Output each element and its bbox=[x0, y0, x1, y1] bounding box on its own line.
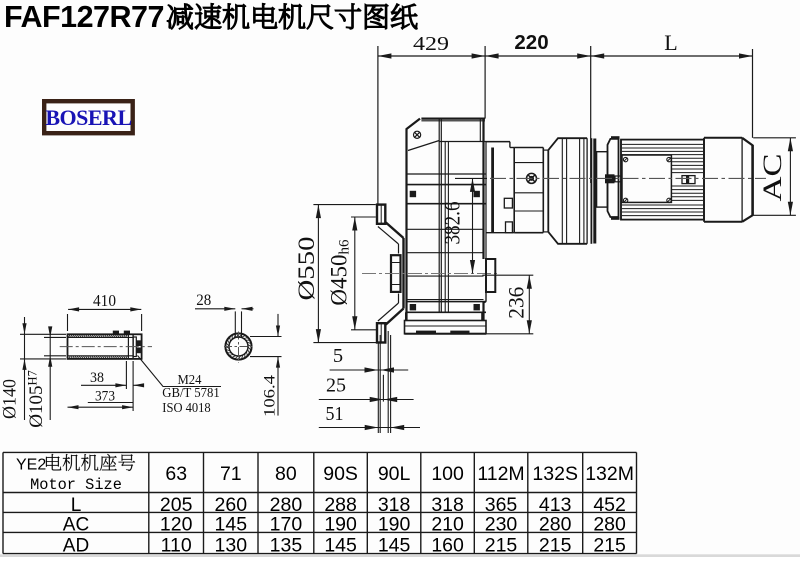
svg-text:280: 280 bbox=[270, 494, 303, 516]
svg-text:132M: 132M bbox=[585, 463, 634, 485]
svg-text:230: 230 bbox=[485, 514, 518, 536]
svg-text:YE2: YE2 bbox=[16, 457, 46, 474]
svg-text:AC: AC bbox=[63, 515, 89, 536]
svg-text:FAF127R77: FAF127R77 bbox=[4, 0, 164, 34]
svg-text:100: 100 bbox=[431, 463, 464, 485]
svg-text:Ø140: Ø140 bbox=[0, 379, 21, 419]
svg-text:145: 145 bbox=[378, 534, 411, 556]
svg-text:51: 51 bbox=[326, 403, 344, 425]
svg-text:318: 318 bbox=[431, 494, 464, 516]
svg-text:132S: 132S bbox=[532, 463, 578, 485]
svg-text:25: 25 bbox=[326, 375, 346, 397]
svg-text:120: 120 bbox=[160, 514, 193, 536]
svg-text:63: 63 bbox=[165, 463, 187, 485]
svg-text:145: 145 bbox=[215, 514, 248, 536]
svg-text:AD: AD bbox=[63, 535, 89, 556]
svg-text:236: 236 bbox=[504, 287, 529, 319]
svg-text:170: 170 bbox=[270, 514, 303, 536]
svg-text:90S: 90S bbox=[323, 463, 358, 485]
svg-text:ISO 4018: ISO 4018 bbox=[162, 400, 211, 415]
svg-text:382.6: 382.6 bbox=[440, 202, 465, 245]
svg-text:429: 429 bbox=[413, 33, 449, 55]
svg-text:90L: 90L bbox=[378, 463, 411, 485]
svg-text:GB/T 5781: GB/T 5781 bbox=[162, 385, 220, 400]
svg-text:280: 280 bbox=[593, 514, 626, 536]
svg-text:110: 110 bbox=[161, 534, 192, 556]
svg-text:L: L bbox=[71, 495, 82, 516]
svg-text:5: 5 bbox=[333, 345, 343, 367]
svg-text:AC: AC bbox=[758, 154, 787, 202]
svg-text:145: 145 bbox=[324, 534, 357, 556]
svg-text:190: 190 bbox=[378, 514, 411, 536]
svg-text:28: 28 bbox=[196, 292, 211, 309]
svg-text:112M: 112M bbox=[477, 463, 524, 485]
svg-text:38: 38 bbox=[90, 370, 104, 386]
svg-text:71: 71 bbox=[220, 463, 242, 485]
svg-text:Motor Size: Motor Size bbox=[30, 476, 122, 494]
svg-text:L: L bbox=[664, 30, 677, 55]
svg-text:160: 160 bbox=[431, 534, 464, 556]
svg-text:Ø550: Ø550 bbox=[294, 237, 319, 301]
svg-text:215: 215 bbox=[539, 534, 572, 556]
svg-text:210: 210 bbox=[431, 514, 464, 536]
svg-text:BOSERL: BOSERL bbox=[45, 105, 131, 130]
svg-text:106.4: 106.4 bbox=[262, 375, 279, 417]
svg-text:190: 190 bbox=[324, 514, 357, 536]
svg-text:80: 80 bbox=[275, 463, 297, 485]
svg-text:288: 288 bbox=[324, 494, 357, 516]
svg-text:365: 365 bbox=[485, 494, 518, 516]
svg-text:280: 280 bbox=[539, 514, 572, 536]
svg-text:215: 215 bbox=[593, 534, 626, 556]
svg-text:373: 373 bbox=[95, 389, 115, 405]
svg-text:135: 135 bbox=[270, 534, 303, 556]
svg-text:410: 410 bbox=[93, 291, 116, 310]
svg-text:215: 215 bbox=[485, 534, 518, 556]
svg-text:318: 318 bbox=[378, 494, 411, 516]
svg-text:260: 260 bbox=[215, 494, 248, 516]
svg-text:452: 452 bbox=[593, 494, 626, 516]
svg-text:205: 205 bbox=[160, 494, 193, 516]
svg-text:220: 220 bbox=[514, 31, 548, 54]
svg-text:130: 130 bbox=[215, 534, 248, 556]
svg-text:413: 413 bbox=[539, 494, 572, 516]
